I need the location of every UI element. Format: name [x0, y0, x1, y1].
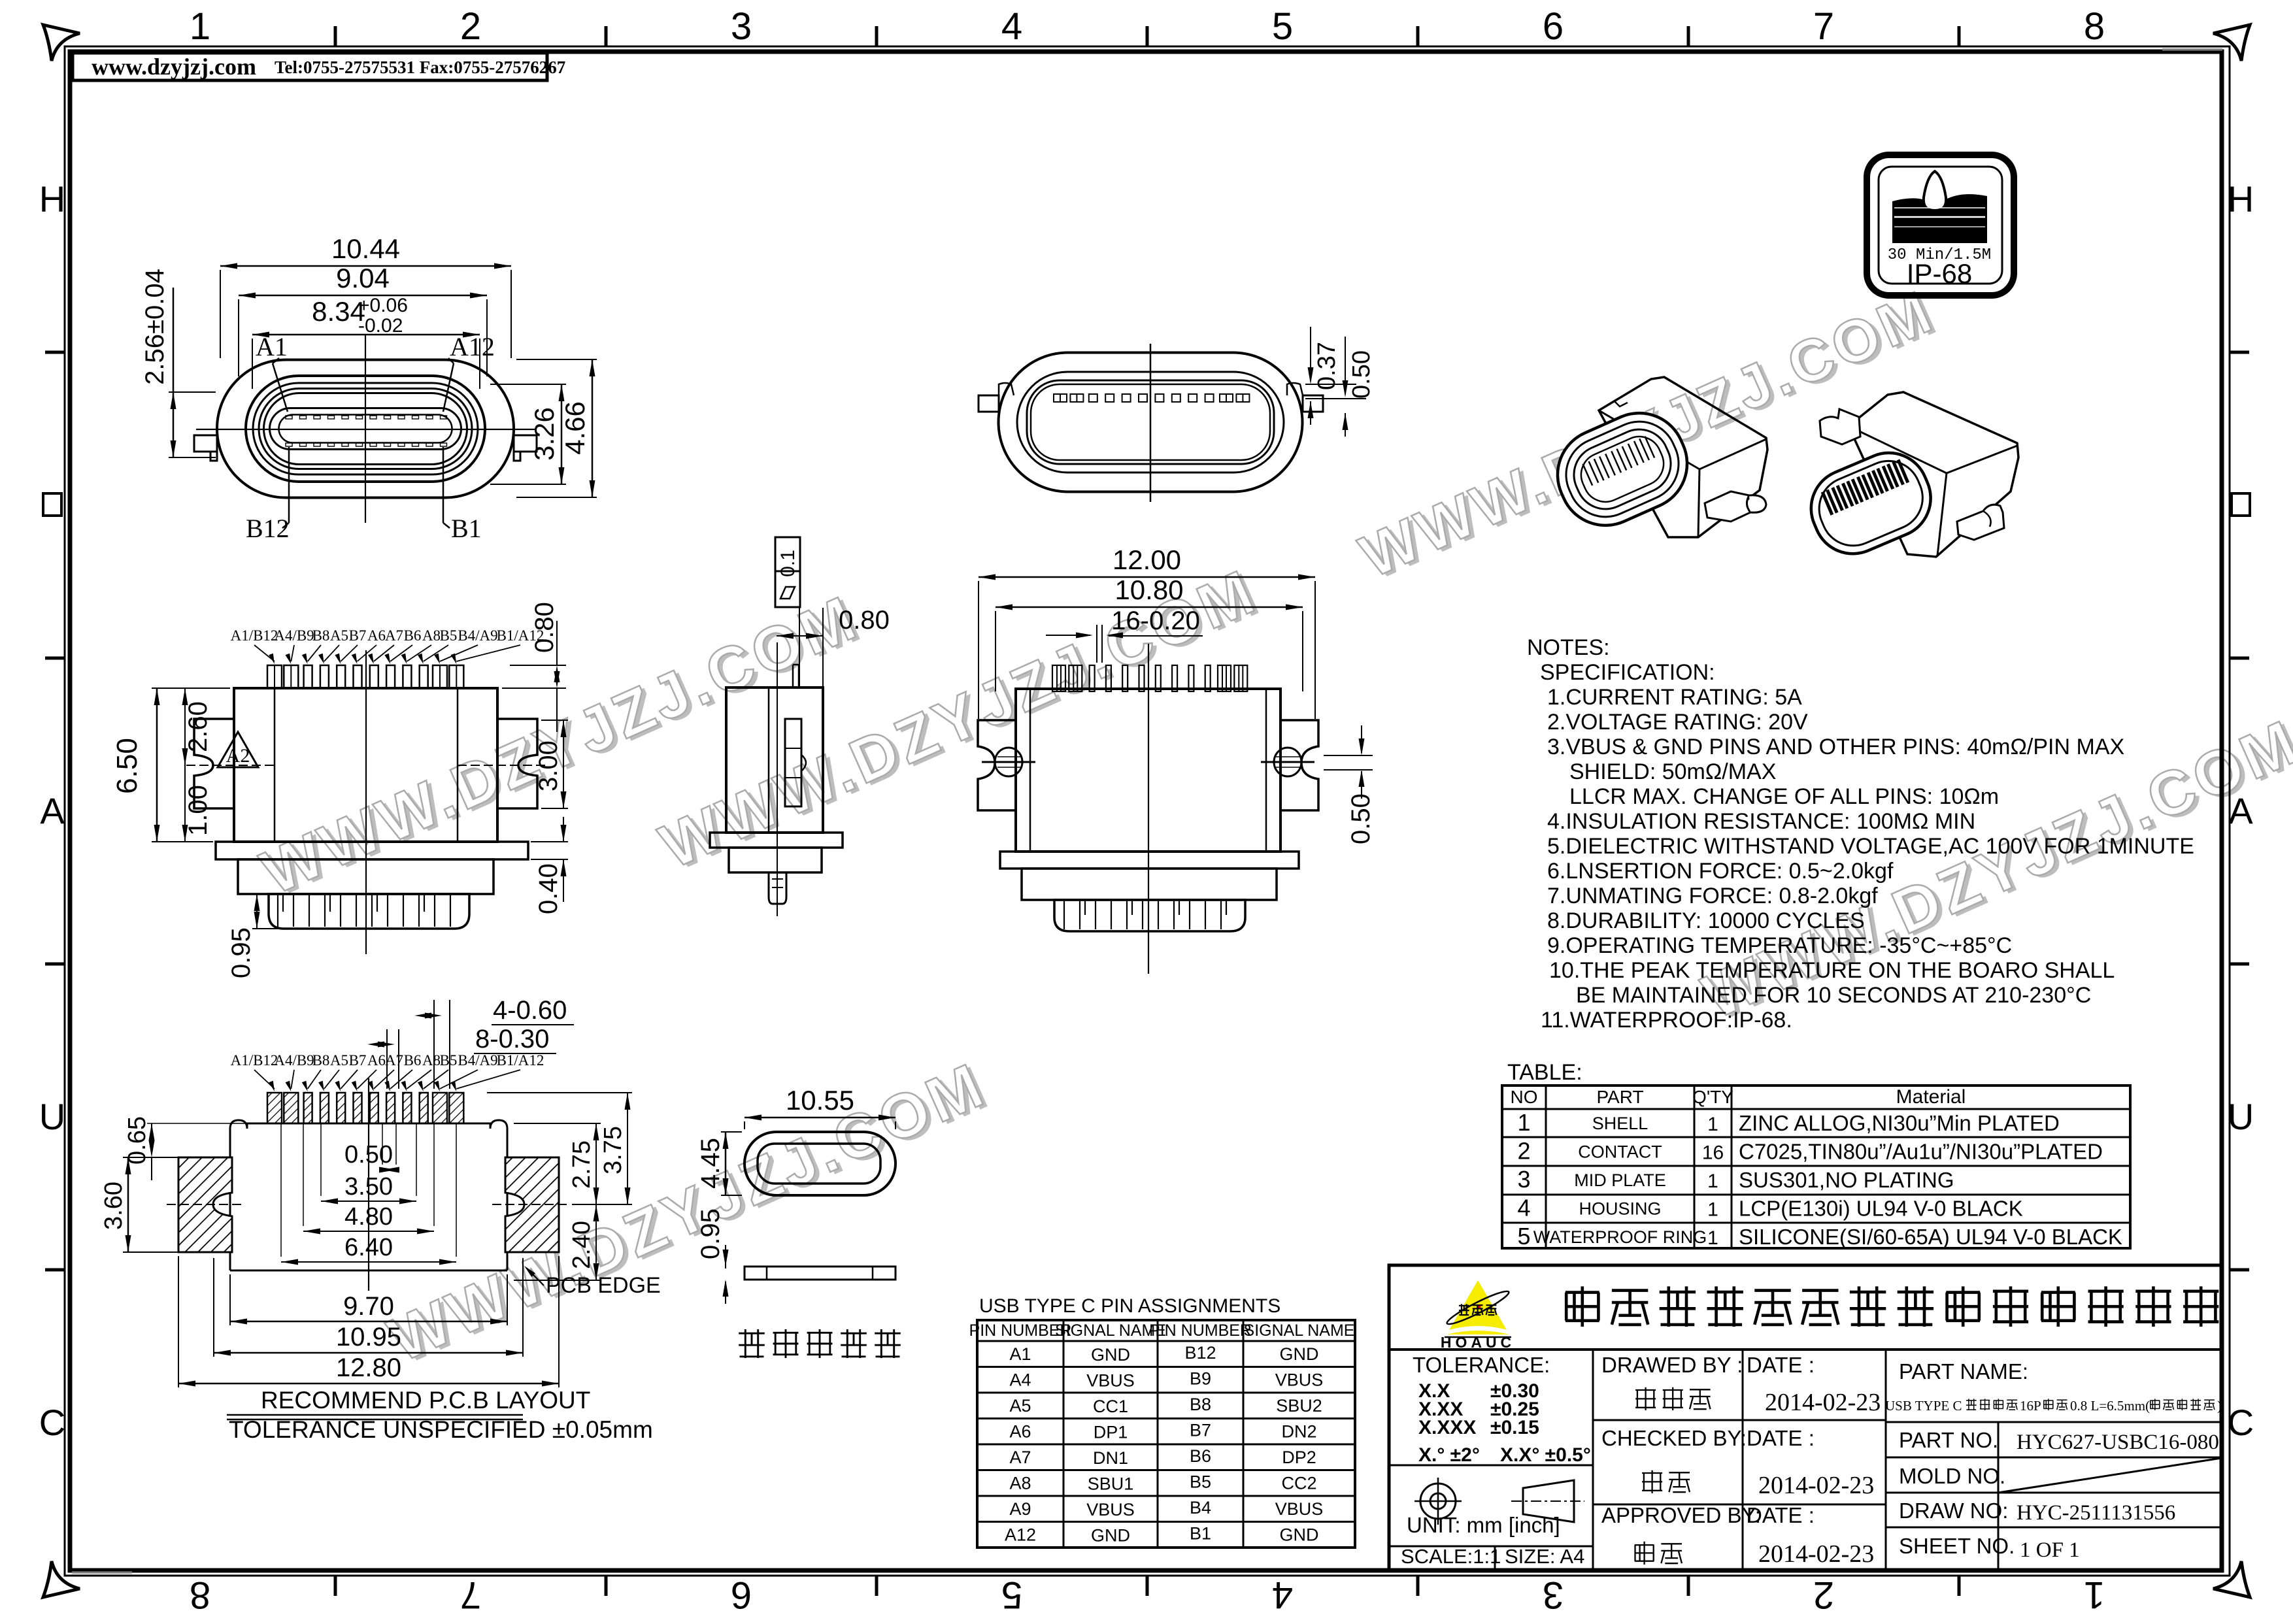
svg-text:0.40: 0.40	[534, 863, 563, 914]
svg-text:9.OPERATING TEMPERATURE: -35°C: 9.OPERATING TEMPERATURE: -35°C~+85°C	[1547, 933, 2012, 958]
svg-text:H: H	[39, 178, 65, 220]
svg-text:4.80: 4.80	[344, 1203, 393, 1231]
svg-text:B8: B8	[1190, 1395, 1211, 1414]
svg-text:3.60: 3.60	[100, 1182, 127, 1230]
svg-text:SHEET NO.: SHEET NO.	[1899, 1534, 2015, 1558]
svg-text:A5: A5	[330, 1052, 348, 1069]
svg-text:0.80: 0.80	[530, 602, 559, 653]
svg-text:B1: B1	[451, 514, 482, 543]
svg-text:MID PLATE: MID PLATE	[1574, 1170, 1666, 1190]
svg-text:IP-68: IP-68	[1907, 258, 1972, 289]
svg-text:B8: B8	[312, 1052, 330, 1069]
svg-text:B6: B6	[1190, 1446, 1211, 1466]
svg-text:4: 4	[1272, 1574, 1293, 1616]
svg-text:0.50: 0.50	[1348, 350, 1375, 399]
svg-text:3: 3	[1517, 1166, 1530, 1193]
svg-text:0.1: 0.1	[777, 550, 799, 577]
svg-text:C: C	[2228, 1402, 2254, 1443]
svg-text:8-0.30: 8-0.30	[475, 1025, 549, 1053]
svg-text:2: 2	[1517, 1138, 1530, 1165]
svg-text:7: 7	[460, 1574, 481, 1616]
svg-text:A12: A12	[450, 332, 495, 361]
svg-text:APPROVED BY:: APPROVED BY:	[1601, 1503, 1761, 1527]
svg-text:LLCR MAX. CHANGE OF ALL PINS:: LLCR MAX. CHANGE OF ALL PINS: 10Ωm	[1569, 784, 1999, 809]
svg-text:A1/B12: A1/B12	[231, 627, 278, 644]
svg-text:B1: B1	[1190, 1524, 1211, 1544]
svg-text:H: H	[2228, 178, 2254, 220]
svg-text:SIGNAL NAME: SIGNAL NAME	[1244, 1321, 1355, 1340]
svg-text:B6: B6	[404, 1052, 422, 1069]
svg-text:PART: PART	[1596, 1087, 1643, 1107]
svg-text:BE MAINTAINED FOR 10 SECONDS A: BE MAINTAINED FOR 10 SECONDS AT 210-230°…	[1576, 983, 2091, 1008]
svg-text:B4/A9: B4/A9	[458, 627, 497, 644]
svg-text:SHIELD: 50mΩ/MAX: SHIELD: 50mΩ/MAX	[1569, 759, 1776, 784]
svg-text:6: 6	[731, 1574, 752, 1616]
svg-text:WATERPROOF RING: WATERPROOF RING	[1533, 1227, 1707, 1247]
svg-text:CC1: CC1	[1093, 1397, 1128, 1416]
svg-text:DATE :: DATE :	[1747, 1503, 1815, 1527]
svg-text:SCALE:1:1: SCALE:1:1	[1401, 1545, 1501, 1568]
svg-text:U: U	[39, 1096, 65, 1137]
svg-text:X.XXX: X.XXX	[1418, 1417, 1476, 1438]
svg-text:5: 5	[1272, 5, 1293, 48]
svg-text:0.50: 0.50	[1347, 793, 1375, 844]
svg-text:DRAW NO:: DRAW NO:	[1899, 1499, 2008, 1523]
svg-text:B9: B9	[1190, 1369, 1211, 1389]
svg-text:HOUSING: HOUSING	[1579, 1199, 1661, 1219]
svg-text:7: 7	[1813, 5, 1834, 48]
svg-text:PCB EDGE: PCB EDGE	[546, 1273, 661, 1298]
svg-text:A7: A7	[385, 1052, 403, 1069]
svg-text:±0.15: ±0.15	[1490, 1417, 1539, 1438]
svg-text:USB TYPE C PIN ASSIGNMENTS: USB TYPE C PIN ASSIGNMENTS	[979, 1295, 1280, 1317]
svg-text:3: 3	[731, 5, 752, 48]
svg-text:U: U	[2228, 1096, 2254, 1137]
svg-text:VBUS: VBUS	[1275, 1499, 1324, 1519]
svg-text:C7025,TIN80u”/Au1u”/NI30u”PLAT: C7025,TIN80u”/Au1u”/NI30u”PLATED	[1739, 1140, 2103, 1164]
svg-text:1: 1	[2084, 1574, 2105, 1616]
svg-text:2.75: 2.75	[568, 1140, 595, 1189]
svg-text:B1/A12: B1/A12	[497, 1052, 544, 1069]
svg-text:6.LNSERTION FORCE: 0.5~2.0kgf: 6.LNSERTION FORCE: 0.5~2.0kgf	[1547, 859, 1894, 884]
svg-text:-0.02: -0.02	[358, 315, 403, 337]
svg-text:NOTES:: NOTES:	[1527, 635, 1610, 660]
svg-text:9.70: 9.70	[343, 1292, 394, 1321]
svg-text:X.° ±2°: X.° ±2°	[1418, 1444, 1480, 1466]
svg-text:3: 3	[1543, 1574, 1564, 1616]
svg-text:VBUS: VBUS	[1086, 1371, 1135, 1391]
svg-text:DP2: DP2	[1282, 1448, 1316, 1467]
svg-text:0.80: 0.80	[839, 606, 890, 635]
svg-text:B7: B7	[349, 1052, 367, 1069]
svg-text:UNIT: mm [inch]: UNIT: mm [inch]	[1407, 1513, 1560, 1537]
svg-text:1: 1	[1707, 1199, 1718, 1221]
svg-text:2.VOLTAGE RATING: 20V: 2.VOLTAGE RATING: 20V	[1547, 710, 1808, 735]
svg-text:0.50: 0.50	[344, 1141, 393, 1168]
svg-text:1: 1	[1707, 1170, 1718, 1192]
svg-text:6.40: 6.40	[344, 1234, 393, 1261]
svg-text:DP1: DP1	[1094, 1423, 1128, 1442]
svg-text:10.55: 10.55	[786, 1085, 854, 1116]
svg-text:CONTACT: CONTACT	[1578, 1142, 1662, 1162]
svg-text:2: 2	[1813, 1574, 1834, 1616]
svg-text:A9: A9	[1009, 1499, 1031, 1519]
svg-text:DATE :: DATE :	[1747, 1426, 1815, 1450]
svg-text:B7: B7	[349, 627, 367, 644]
svg-text:B6: B6	[404, 627, 422, 644]
svg-text:MOLD NO.: MOLD NO.	[1899, 1464, 2005, 1488]
svg-text:12.00: 12.00	[1113, 544, 1181, 575]
svg-text:PART NAME:: PART NAME:	[1899, 1359, 2028, 1384]
svg-text:8.34: 8.34	[312, 296, 365, 327]
svg-text:11.WATERPROOF:IP-68.: 11.WATERPROOF:IP-68.	[1541, 1008, 1792, 1033]
svg-text:A7: A7	[1009, 1448, 1031, 1467]
svg-text:www.dzyjzj.com: www.dzyjzj.com	[92, 54, 256, 80]
svg-text:10.80: 10.80	[1114, 574, 1183, 605]
svg-text:DATE :: DATE :	[1747, 1353, 1815, 1377]
svg-text:4.45: 4.45	[696, 1138, 725, 1189]
svg-text:RECOMMEND P.C.B LAYOUT: RECOMMEND P.C.B LAYOUT	[261, 1387, 590, 1414]
svg-text:6: 6	[1543, 5, 1564, 48]
svg-text:GND: GND	[1280, 1344, 1319, 1364]
svg-text:SILICONE(SI/60-65A) UL94 V-0: SILICONE(SI/60-65A) UL94 V-0 BLACK	[1739, 1225, 2122, 1249]
svg-text:9.04: 9.04	[336, 263, 390, 293]
svg-text:0.8 L=6.5mm(: 0.8 L=6.5mm(	[2070, 1398, 2150, 1414]
svg-text:3.50: 3.50	[344, 1173, 393, 1201]
svg-text:1.CURRENT RATING: 5A: 1.CURRENT RATING: 5A	[1547, 685, 1802, 710]
svg-text:SPECIFICATION:: SPECIFICATION:	[1540, 660, 1715, 685]
svg-text:GND: GND	[1091, 1345, 1130, 1365]
svg-text:DN2: DN2	[1281, 1422, 1316, 1442]
svg-text:4.INSULATION RESISTANCE: 100M: 4.INSULATION RESISTANCE: 100MΩ MIN	[1547, 809, 1975, 834]
svg-text:0.95: 0.95	[227, 927, 256, 978]
svg-text:5: 5	[1517, 1223, 1530, 1250]
svg-text:A12: A12	[1005, 1525, 1036, 1545]
svg-text:5.DIELECTRIC WITHSTAND VOLTAGE: 5.DIELECTRIC WITHSTAND VOLTAGE,AC 100V F…	[1547, 834, 2194, 859]
svg-text:A: A	[40, 790, 65, 831]
svg-text:A5: A5	[1009, 1396, 1031, 1416]
svg-text:CC2: CC2	[1281, 1474, 1316, 1493]
svg-text:4: 4	[1517, 1195, 1530, 1221]
svg-text:B5: B5	[440, 627, 458, 644]
svg-text:B4: B4	[1190, 1498, 1211, 1517]
svg-text:CHECKED BY:: CHECKED BY:	[1601, 1426, 1747, 1450]
svg-text:TOLERANCE UNSPECIFIED ±0.05m: TOLERANCE UNSPECIFIED ±0.05mm	[229, 1416, 653, 1443]
svg-text:USB TYPE C: USB TYPE C	[1885, 1398, 1962, 1414]
svg-text:PIN NUMBER: PIN NUMBER	[1149, 1321, 1252, 1340]
svg-text:VBUS: VBUS	[1275, 1370, 1324, 1390]
svg-text:1: 1	[1517, 1109, 1530, 1136]
svg-text:A8: A8	[422, 627, 441, 644]
svg-text:4-0.60: 4-0.60	[493, 996, 567, 1025]
svg-text:A1: A1	[256, 332, 288, 361]
svg-text:B7: B7	[1190, 1421, 1211, 1440]
svg-text:16: 16	[1702, 1142, 1724, 1164]
svg-text:GND: GND	[1091, 1526, 1130, 1546]
svg-text:DN1: DN1	[1093, 1448, 1128, 1468]
svg-text:3.00: 3.00	[534, 740, 563, 791]
svg-text:A1: A1	[1009, 1344, 1031, 1364]
svg-text:B5: B5	[1190, 1472, 1211, 1492]
svg-text:1.00: 1.00	[184, 785, 212, 836]
svg-text:A4/B9: A4/B9	[274, 627, 314, 644]
svg-text:HYC627-USBC16-080: HYC627-USBC16-080	[2017, 1431, 2219, 1454]
svg-text:16-0.20: 16-0.20	[1111, 606, 1200, 635]
svg-text:DRAWED BY :: DRAWED BY :	[1601, 1353, 1743, 1377]
svg-text:1: 1	[1707, 1114, 1718, 1135]
svg-text:12.80: 12.80	[336, 1353, 401, 1382]
svg-text:ZINC ALLOG,NI30u”Min PLATED: ZINC ALLOG,NI30u”Min PLATED	[1739, 1111, 2060, 1135]
svg-text:2014-02-23: 2014-02-23	[1765, 1389, 1881, 1416]
svg-text:A5: A5	[330, 627, 348, 644]
svg-text:2014-02-23: 2014-02-23	[1758, 1540, 1874, 1568]
svg-text:8: 8	[190, 1574, 210, 1616]
svg-text:10.95: 10.95	[336, 1323, 401, 1351]
svg-text:4: 4	[1001, 5, 1022, 48]
svg-text:4.66: 4.66	[560, 401, 590, 455]
svg-text:NO: NO	[1511, 1087, 1538, 1107]
svg-text:SBU2: SBU2	[1276, 1396, 1322, 1416]
svg-text:2.60: 2.60	[184, 701, 212, 752]
svg-text:TABLE:: TABLE:	[1507, 1060, 1582, 1085]
svg-text:X.X° ±0.5°: X.X° ±0.5°	[1500, 1444, 1591, 1466]
svg-text:HOAUC: HOAUC	[1441, 1334, 1515, 1351]
svg-text:TOLERANCE:: TOLERANCE:	[1413, 1353, 1550, 1377]
svg-text:B5: B5	[440, 1052, 458, 1069]
svg-text:8.DURABILITY: 10000 CYCLES: 8.DURABILITY: 10000 CYCLES	[1547, 908, 1865, 933]
svg-text:A2: A2	[226, 745, 250, 767]
svg-text:A6: A6	[367, 1052, 386, 1069]
svg-text:7.UNMATING FORCE: 0.8-2.0kgf: 7.UNMATING FORCE: 0.8-2.0kgf	[1547, 884, 1878, 908]
svg-text:A8: A8	[422, 1052, 441, 1069]
svg-text:A6: A6	[1009, 1422, 1031, 1442]
svg-text:6.50: 6.50	[111, 738, 143, 794]
svg-text:1: 1	[190, 5, 210, 48]
svg-text:A8: A8	[1009, 1474, 1031, 1493]
svg-text:SIZE: A4: SIZE: A4	[1505, 1545, 1584, 1568]
svg-text:A7: A7	[385, 627, 403, 644]
svg-text:GND: GND	[1280, 1525, 1319, 1545]
svg-text:HYC-2511131556: HYC-2511131556	[2017, 1501, 2175, 1525]
svg-text:+0.06: +0.06	[358, 295, 408, 316]
svg-text:16P: 16P	[2020, 1398, 2041, 1414]
svg-text:10.44: 10.44	[331, 233, 400, 264]
svg-text:8: 8	[2084, 5, 2105, 48]
svg-text:2.40: 2.40	[568, 1221, 595, 1269]
svg-text:A: A	[2228, 790, 2253, 831]
svg-text:SHELL: SHELL	[1592, 1114, 1649, 1133]
svg-text:B4/A9: B4/A9	[458, 1052, 497, 1069]
svg-text:B12: B12	[1184, 1343, 1216, 1363]
svg-text:1 OF 1: 1 OF 1	[2020, 1538, 2080, 1562]
svg-text:5: 5	[1001, 1574, 1022, 1616]
svg-text:3.75: 3.75	[599, 1126, 627, 1174]
svg-text:SBU1: SBU1	[1088, 1474, 1134, 1494]
svg-text:10.THE PEAK TEMPERATURE ON THE: 10.THE PEAK TEMPERATURE ON THE BOARO SHA…	[1549, 958, 2115, 983]
svg-text:Q'TY: Q'TY	[1692, 1087, 1733, 1107]
svg-text:A4/B9: A4/B9	[274, 1052, 314, 1069]
svg-text:0.37: 0.37	[1313, 342, 1341, 390]
svg-text:3.26: 3.26	[529, 407, 560, 461]
svg-text:PART NO.: PART NO.	[1899, 1428, 1998, 1452]
svg-text:3.VBUS & GND PINS AND OTHER PI: 3.VBUS & GND PINS AND OTHER PINS: 40mΩ/P…	[1547, 735, 2124, 759]
svg-text:2.56±0.04: 2.56±0.04	[141, 269, 169, 385]
svg-text:2: 2	[460, 5, 481, 48]
svg-text:): )	[2217, 1398, 2222, 1414]
svg-text:C: C	[39, 1402, 65, 1443]
svg-text:2014-02-23: 2014-02-23	[1758, 1472, 1874, 1499]
svg-text:Tel:0755-27575531 Fax:0755-27: Tel:0755-27575531 Fax:0755-27576267	[275, 58, 565, 77]
svg-text:Material: Material	[1896, 1086, 1966, 1108]
svg-text:B8: B8	[312, 627, 330, 644]
svg-text:A6: A6	[367, 627, 386, 644]
svg-text:VBUS: VBUS	[1086, 1500, 1135, 1519]
svg-text:0.95: 0.95	[696, 1208, 725, 1259]
svg-text:1: 1	[1707, 1227, 1718, 1249]
svg-text:SUS301,NO PLATING: SUS301,NO PLATING	[1739, 1168, 1954, 1192]
svg-text:LCP(E130i) UL94 V-0 BLACK: LCP(E130i) UL94 V-0 BLACK	[1739, 1197, 2023, 1221]
svg-text:A4: A4	[1009, 1370, 1031, 1390]
svg-text:A1/B12: A1/B12	[231, 1052, 278, 1069]
